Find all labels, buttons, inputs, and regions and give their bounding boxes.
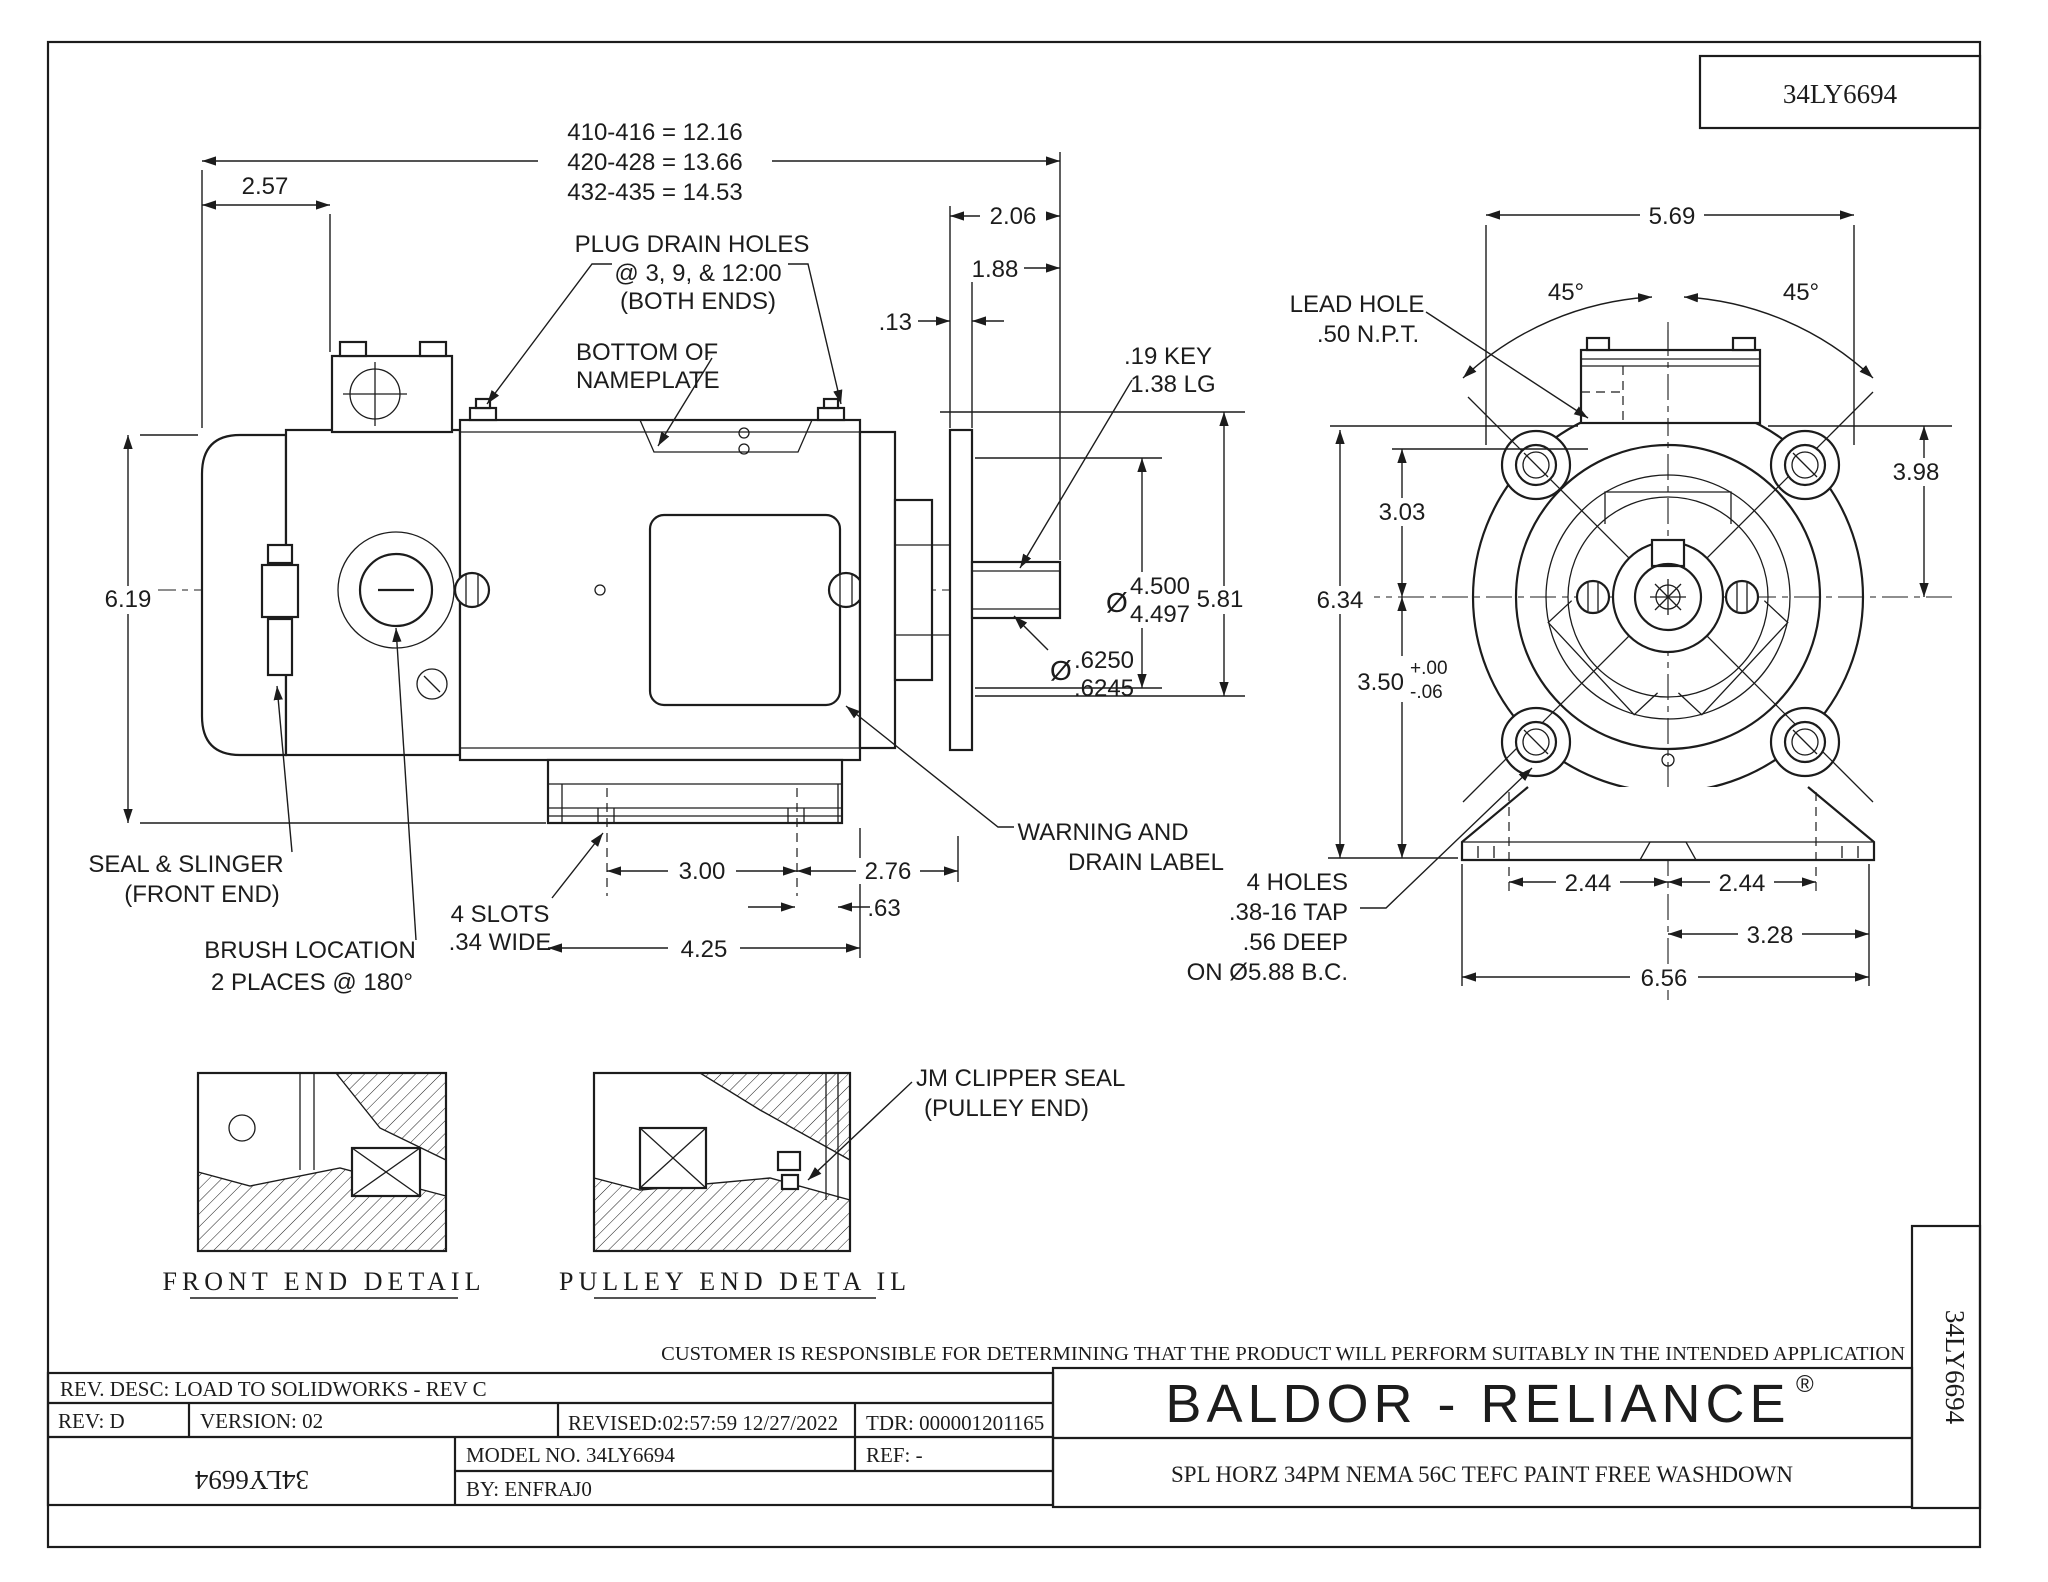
dim-2-57: 2.57 — [242, 173, 289, 200]
seal-note-1: SEAL & SLINGER — [88, 851, 283, 878]
dim-0-13: .13 — [879, 309, 912, 336]
stub-dia-symbol: Ø — [1050, 655, 1072, 686]
dim-2-76: 2.76 — [865, 858, 912, 885]
plug-note-3: (BOTH ENDS) — [620, 288, 776, 315]
holes-note-3: .56 DEEP — [1243, 929, 1348, 956]
seal-slinger — [262, 545, 298, 675]
dim-3-03: 3.03 — [1379, 499, 1426, 526]
part-number-top: 34LY6694 — [1783, 79, 1898, 109]
slots-note-1: 4 SLOTS — [451, 901, 550, 928]
dim-0-63: .63 — [867, 895, 900, 922]
length-dim-1: 410-416 = 12.16 — [567, 119, 743, 146]
key-note-2: 1.38 LG — [1130, 371, 1215, 398]
slinger-plate — [950, 430, 972, 750]
length-dim-2: 420-428 = 13.66 — [567, 149, 743, 176]
warning-note-1: WARNING AND — [1017, 819, 1188, 846]
side-view — [150, 342, 1060, 823]
motor-body — [460, 420, 860, 760]
stub-dia-leader — [1014, 616, 1048, 650]
stub-dia-lower: .6245 — [1074, 675, 1134, 702]
ref: REF: - — [866, 1443, 923, 1467]
drain-plug-left — [470, 399, 496, 420]
pulley-detail-caption: PULLEY END DETA IL — [559, 1267, 911, 1296]
dim-3-98: 3.98 — [1893, 459, 1940, 486]
holes-note-1: 4 HOLES — [1247, 869, 1348, 896]
plug-leader-right — [788, 264, 841, 404]
center-mark — [1650, 579, 1686, 615]
key-note-1: .19 KEY — [1124, 343, 1212, 370]
key-leader — [1020, 380, 1132, 568]
mounting-feet — [1462, 787, 1874, 860]
nameplate-note-1: BOTTOM OF — [576, 339, 718, 366]
angle-45-right: 45° — [1783, 279, 1819, 306]
dim-6-19: 6.19 — [105, 586, 152, 613]
front-housing — [286, 430, 460, 755]
tol-minus: -.06 — [1410, 682, 1443, 703]
tdr: TDR: 000001201165 — [866, 1411, 1044, 1435]
plug-note-2: @ 3, 9, & 12:00 — [614, 260, 781, 287]
brand-name: BALDOR - RELIANCE — [1165, 1374, 1790, 1434]
dim-3-28: 3.28 — [1747, 922, 1794, 949]
model-no: MODEL NO. 34LY6694 — [466, 1443, 675, 1467]
body-screw-right — [829, 573, 863, 607]
front-end-detail — [198, 1073, 446, 1251]
product-description: SPL HORZ 34PM NEMA 56C TEFC PAINT FREE W… — [1171, 1462, 1793, 1487]
holes-note-4: ON Ø5.88 B.C. — [1187, 959, 1348, 986]
revised: REVISED:02:57:59 12/27/2022 — [568, 1411, 838, 1435]
lead-note-1: LEAD HOLE — [1290, 291, 1425, 318]
motor-base — [548, 760, 842, 823]
dim-2-06: 2.06 — [990, 203, 1037, 230]
shaft-dia-lower: 4.497 — [1130, 601, 1190, 628]
body-screw-left — [455, 573, 489, 607]
angle-45-left: 45° — [1548, 279, 1584, 306]
dim-6-34: 6.34 — [1317, 587, 1364, 614]
dim-3-00: 3.00 — [679, 858, 726, 885]
plug-note-1: PLUG DRAIN HOLES — [575, 231, 810, 258]
jm-note-1: JM CLIPPER SEAL — [916, 1065, 1125, 1092]
stub-dia-upper: .6250 — [1074, 647, 1134, 674]
brush-note-1: BRUSH LOCATION — [204, 937, 416, 964]
pulley-end-detail — [594, 1073, 850, 1251]
tol-plus: +.00 — [1410, 658, 1448, 679]
slots-note-2: .34 WIDE — [449, 929, 552, 956]
seal-note-2: (FRONT END) — [124, 881, 280, 908]
title-block-text: CUSTOMER IS RESPONSIBLE FOR DETERMINING … — [58, 1310, 1970, 1501]
by: BY: ENFRAJ0 — [466, 1477, 592, 1501]
dim-4-25: 4.25 — [681, 936, 728, 963]
version: VERSION: 02 — [200, 1409, 323, 1433]
dim-2-44-right: 2.44 — [1719, 870, 1766, 897]
conduit-box — [1581, 338, 1760, 423]
drawing-canvas: 34LY6694 — [0, 0, 2048, 1582]
rev-desc: REV. DESC: LOAD TO SOLIDWORKS - REV C — [60, 1377, 487, 1401]
dim-5-81: 5.81 — [1197, 586, 1244, 613]
dim-3-50: 3.50 — [1357, 669, 1404, 696]
jm-note-2: (PULLEY END) — [924, 1095, 1089, 1122]
brand-reg-mark: ® — [1796, 1371, 1814, 1398]
length-dim-3: 432-435 = 14.53 — [567, 179, 743, 206]
customer-note: CUSTOMER IS RESPONSIBLE FOR DETERMINING … — [661, 1343, 1905, 1365]
shaft-dia-upper: 4.500 — [1130, 573, 1190, 600]
slots-leader — [552, 833, 603, 898]
rear-hub — [860, 432, 895, 748]
dim-2-44-left: 2.44 — [1565, 870, 1612, 897]
rev: REV: D — [58, 1409, 125, 1433]
dim-6-56: 6.56 — [1641, 965, 1688, 992]
drawing-sheet: 34LY6694 — [0, 0, 2048, 1582]
dim-5-69: 5.69 — [1649, 203, 1696, 230]
dim-1-88: 1.88 — [972, 256, 1019, 283]
lead-note-2: .50 N.P.T. — [1317, 321, 1419, 348]
lead-hole-leader — [1426, 312, 1588, 418]
front-detail-caption: FRONT END DETAIL — [163, 1267, 486, 1296]
holes-note-2: .38-16 TAP — [1229, 899, 1348, 926]
shaft-dia-symbol: Ø — [1106, 587, 1128, 618]
nameplate-note-2: NAMEPLATE — [576, 367, 720, 394]
keyway — [1652, 540, 1684, 566]
brush-note-2: 2 PLACES @ 180° — [211, 969, 413, 996]
part-number-edge: 34LY6694 — [1940, 1310, 1970, 1425]
stamp-upside-down: 34LY6694 — [194, 1465, 309, 1495]
warning-note-2: DRAIN LABEL — [1068, 849, 1224, 876]
